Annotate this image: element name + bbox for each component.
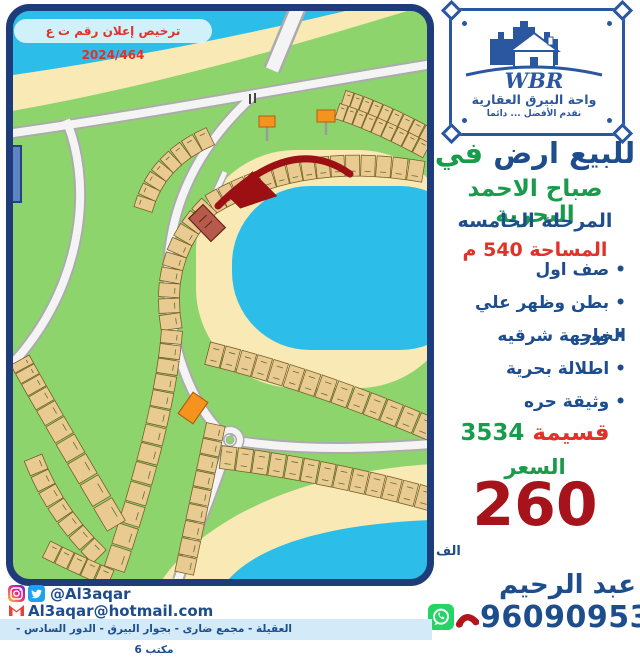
email-address: Al3aqar@hotmail.com (28, 602, 213, 620)
listing-phase: المرحلة الخامسه (432, 210, 638, 232)
gmail-icon (8, 603, 25, 617)
twitter-icon (28, 585, 45, 602)
feature-item: واجهة شرقيه (432, 320, 626, 353)
instagram-icon (8, 585, 25, 602)
upper-lagoon (232, 186, 434, 350)
feature-item: بطن وظهر علي الخور (432, 287, 626, 320)
feature-item: وثيقة حره (432, 386, 626, 419)
company-name: واحة البيرق العقارية (449, 92, 619, 107)
flyer: { "license": { "text": "ترخيص إعلان رقم … (0, 0, 640, 640)
plot-label: قسيمة (532, 420, 609, 446)
license-badge: ترخيص إعلان رقم ت ع 2024/464 (14, 19, 212, 43)
price-value: 260 (432, 474, 638, 536)
wbr-wordmark: WBR (449, 68, 619, 93)
price-unit: الف (436, 544, 461, 559)
plot-number: 3534 (460, 420, 524, 446)
office-address: العقيلة - مجمع ضارى - بجوار البيرق - الد… (4, 619, 304, 640)
phone-icon (455, 607, 479, 631)
agent-name: عبد الرحيم (432, 570, 636, 600)
title-main: للبيع ارض (493, 136, 635, 170)
feature-item: اطلالة بحرية (432, 353, 626, 386)
company-tagline: نقدم الأفضل ... دائما (449, 109, 619, 119)
feature-item: صف اول (432, 254, 626, 287)
site-map (6, 4, 434, 586)
social-handle: @Al3aqar (50, 585, 131, 603)
title-in: في (435, 136, 483, 170)
feature-list: صف اول بطن وظهر علي الخور واجهة شرقيه اط… (432, 254, 638, 419)
plot-number-line: قسيمة 3534 (432, 420, 638, 446)
map-svg (6, 4, 434, 586)
phone-number: 96090953 (480, 600, 640, 635)
listing-title: للبيع ارض في (432, 136, 638, 170)
